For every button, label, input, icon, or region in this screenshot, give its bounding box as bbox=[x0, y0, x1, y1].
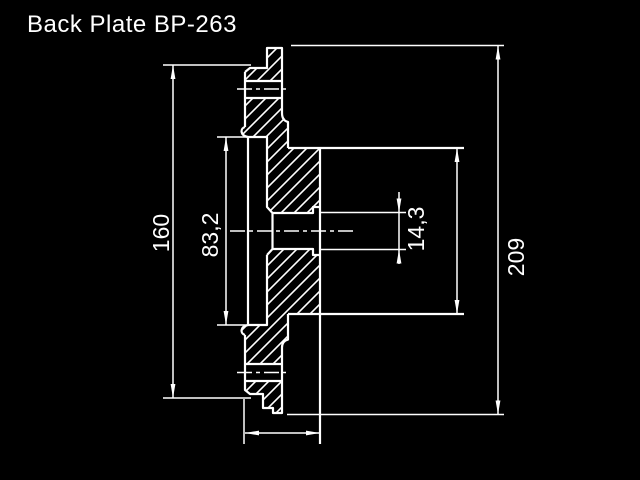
dim-14-arrow-top bbox=[397, 199, 402, 213]
dim-label-209: 209 bbox=[503, 238, 529, 276]
dim-209-arrow-bottom bbox=[496, 401, 501, 415]
dim-14-lines bbox=[321, 192, 406, 264]
dimension-hub-step bbox=[455, 148, 460, 314]
dim-hub-arrow-bottom bbox=[455, 300, 460, 314]
hatch-body-top bbox=[242, 98, 320, 213]
dim-thickness-arrow-right bbox=[306, 431, 320, 436]
dimension-bore-diameter: 14,3 bbox=[321, 192, 429, 264]
dim-hub-arrow-top bbox=[455, 148, 460, 162]
dim-label-83: 83,2 bbox=[197, 213, 223, 258]
dim-83-arrow-bottom bbox=[224, 311, 229, 325]
dim-14-arrow-bottom bbox=[397, 250, 402, 264]
dim-label-14: 14,3 bbox=[403, 207, 429, 252]
cad-viewport: Back Plate BP-263 16 bbox=[0, 0, 640, 480]
dim-83-arrow-top bbox=[224, 137, 229, 151]
dim-thickness-arrow-left bbox=[245, 431, 259, 436]
dim-160-arrow-bottom bbox=[171, 384, 176, 398]
backplate-section-view: 160 83,2 14,3 209 bbox=[0, 0, 640, 480]
dim-160-arrow-top bbox=[171, 65, 176, 79]
dim-209-arrow-top bbox=[496, 46, 501, 60]
dim-label-160: 160 bbox=[148, 214, 174, 252]
